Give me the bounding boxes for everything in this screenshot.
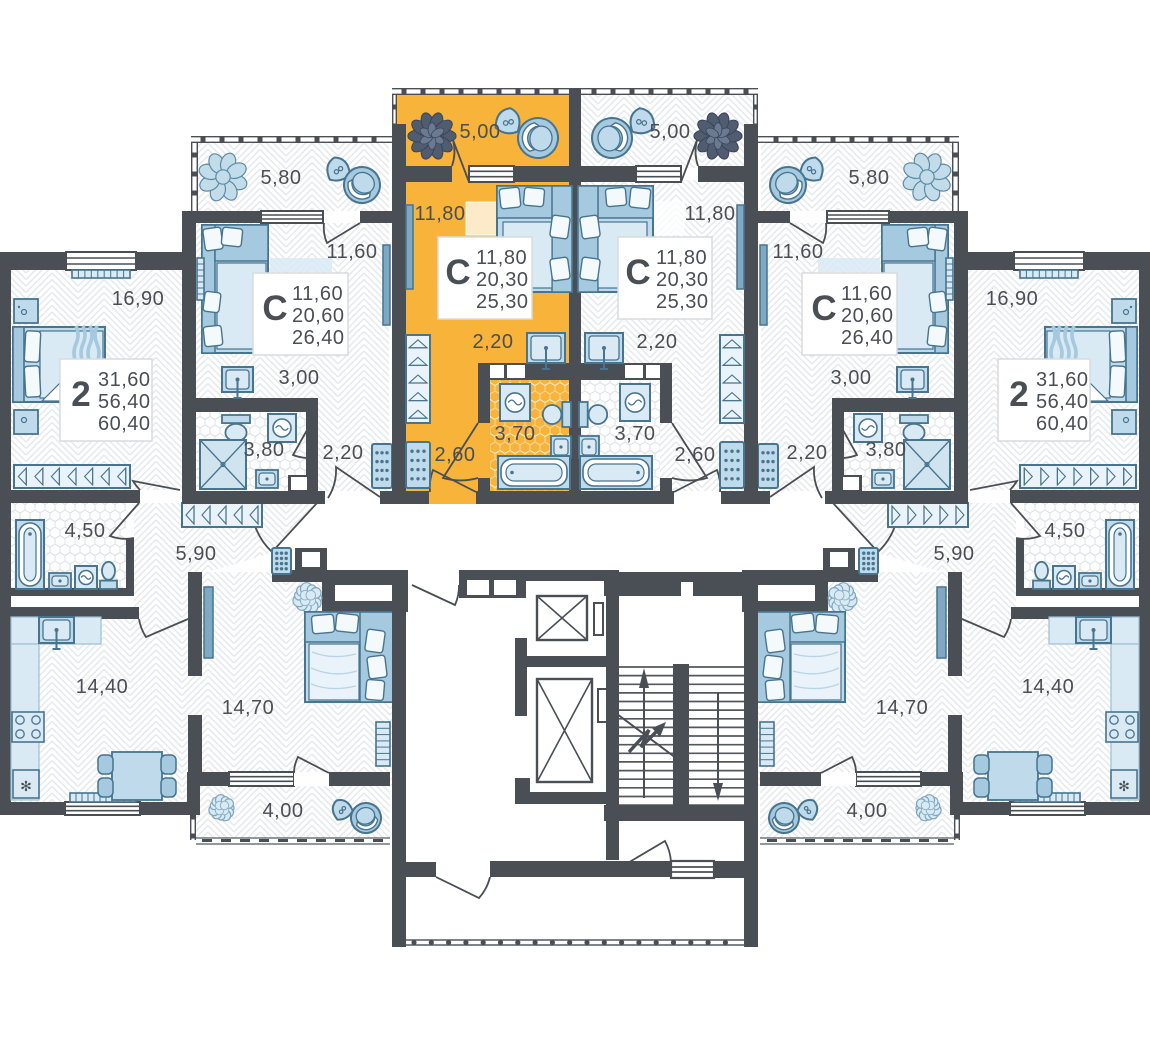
- svg-text:2,60: 2,60: [675, 444, 716, 466]
- svg-text:5,90: 5,90: [934, 543, 975, 565]
- svg-text:5,80: 5,80: [849, 167, 890, 189]
- svg-text:56,40: 56,40: [98, 391, 151, 413]
- svg-text:5,80: 5,80: [261, 167, 302, 189]
- svg-text:C: C: [811, 289, 836, 328]
- svg-text:2: 2: [71, 375, 90, 414]
- svg-text:20,60: 20,60: [841, 305, 894, 327]
- svg-text:14,40: 14,40: [1022, 676, 1075, 698]
- svg-text:25,30: 25,30: [656, 291, 709, 313]
- svg-text:3,70: 3,70: [615, 423, 656, 445]
- svg-text:2: 2: [1009, 375, 1028, 414]
- svg-text:11,80: 11,80: [656, 247, 707, 269]
- svg-text:3,00: 3,00: [831, 367, 872, 389]
- svg-text:C: C: [445, 253, 470, 292]
- svg-text:2,20: 2,20: [787, 442, 828, 464]
- svg-text:60,40: 60,40: [98, 413, 151, 435]
- svg-text:11,60: 11,60: [292, 283, 343, 305]
- svg-text:5,00: 5,00: [460, 121, 501, 143]
- svg-text:16,90: 16,90: [986, 288, 1039, 310]
- svg-text:3,80: 3,80: [866, 439, 907, 461]
- svg-text:11,60: 11,60: [326, 241, 377, 263]
- svg-text:4,50: 4,50: [65, 520, 106, 542]
- svg-text:C: C: [625, 253, 650, 292]
- svg-text:3,80: 3,80: [244, 439, 285, 461]
- svg-text:20,60: 20,60: [292, 305, 345, 327]
- svg-text:4,00: 4,00: [847, 800, 888, 822]
- svg-text:14,70: 14,70: [876, 697, 929, 719]
- svg-text:26,40: 26,40: [841, 327, 894, 349]
- svg-text:✻: ✻: [20, 778, 32, 794]
- svg-text:25,30: 25,30: [476, 291, 529, 313]
- svg-text:14,70: 14,70: [222, 697, 275, 719]
- svg-text:31,60: 31,60: [1036, 369, 1089, 391]
- svg-text:14,40: 14,40: [76, 676, 129, 698]
- svg-text:60,40: 60,40: [1036, 413, 1089, 435]
- svg-text:C: C: [262, 289, 287, 328]
- svg-text:16,90: 16,90: [112, 288, 165, 310]
- svg-text:2,20: 2,20: [637, 331, 678, 353]
- svg-text:4,50: 4,50: [1045, 520, 1086, 542]
- svg-text:4,00: 4,00: [263, 800, 304, 822]
- svg-text:11,80: 11,80: [684, 203, 735, 225]
- svg-text:20,30: 20,30: [476, 269, 529, 291]
- svg-text:11,60: 11,60: [841, 283, 892, 305]
- svg-text:20,30: 20,30: [656, 269, 709, 291]
- svg-text:31,60: 31,60: [98, 369, 151, 391]
- svg-text:5,00: 5,00: [650, 121, 691, 143]
- svg-text:2,20: 2,20: [323, 442, 364, 464]
- svg-text:3,70: 3,70: [495, 423, 536, 445]
- svg-text:26,40: 26,40: [292, 327, 345, 349]
- svg-text:5,90: 5,90: [176, 543, 217, 565]
- svg-text:56,40: 56,40: [1036, 391, 1089, 413]
- svg-text:11,60: 11,60: [772, 241, 823, 263]
- svg-text:11,80: 11,80: [476, 247, 527, 269]
- svg-text:2,20: 2,20: [473, 331, 514, 353]
- svg-text:11,80: 11,80: [414, 203, 465, 225]
- svg-text:2,60: 2,60: [435, 444, 476, 466]
- svg-text:3,00: 3,00: [279, 367, 320, 389]
